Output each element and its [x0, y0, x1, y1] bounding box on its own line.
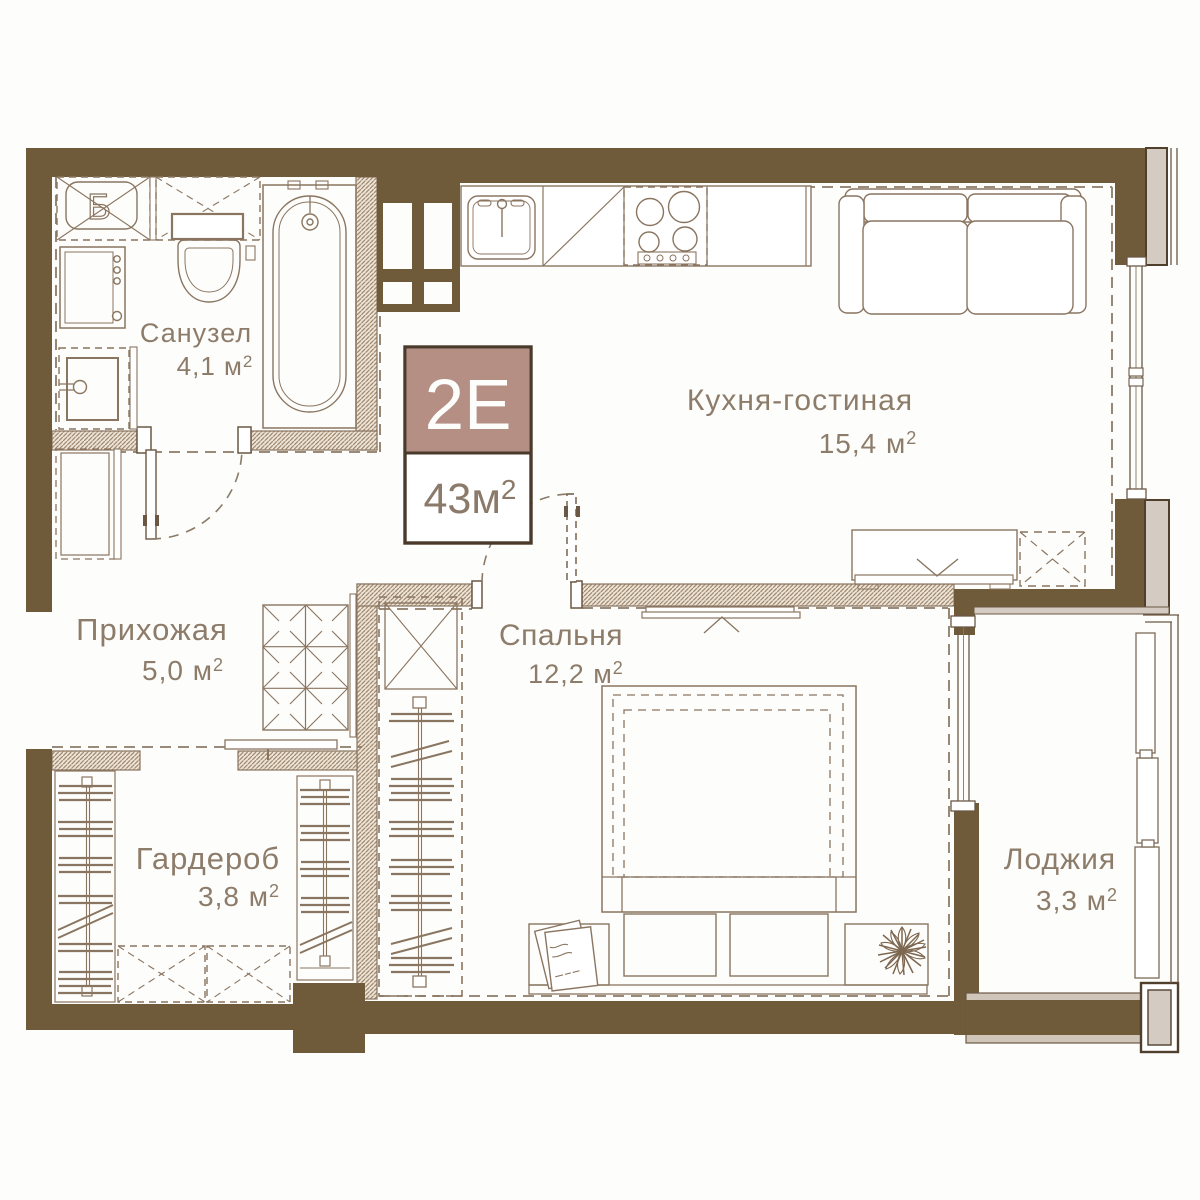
- svg-text:3,8 м2: 3,8 м2: [198, 881, 280, 912]
- svg-text:Спальня: Спальня: [499, 619, 623, 652]
- svg-text:5,0 м2: 5,0 м2: [142, 655, 224, 686]
- svg-text:Санузел: Санузел: [140, 318, 252, 348]
- svg-text:Прихожая: Прихожая: [76, 612, 228, 647]
- svg-text:Кухня-гостиная: Кухня-гостиная: [687, 384, 913, 417]
- svg-text:Б: Б: [87, 186, 111, 227]
- svg-text:3,3 м2: 3,3 м2: [1036, 885, 1118, 916]
- svg-text:12,2 м2: 12,2 м2: [528, 658, 624, 689]
- svg-text:2Е: 2Е: [425, 366, 512, 445]
- svg-text:15,4 м2: 15,4 м2: [819, 428, 918, 459]
- svg-text:Лоджия: Лоджия: [1004, 843, 1116, 876]
- svg-text:Гардероб: Гардероб: [136, 841, 280, 876]
- svg-text:4,1 м2: 4,1 м2: [177, 351, 254, 381]
